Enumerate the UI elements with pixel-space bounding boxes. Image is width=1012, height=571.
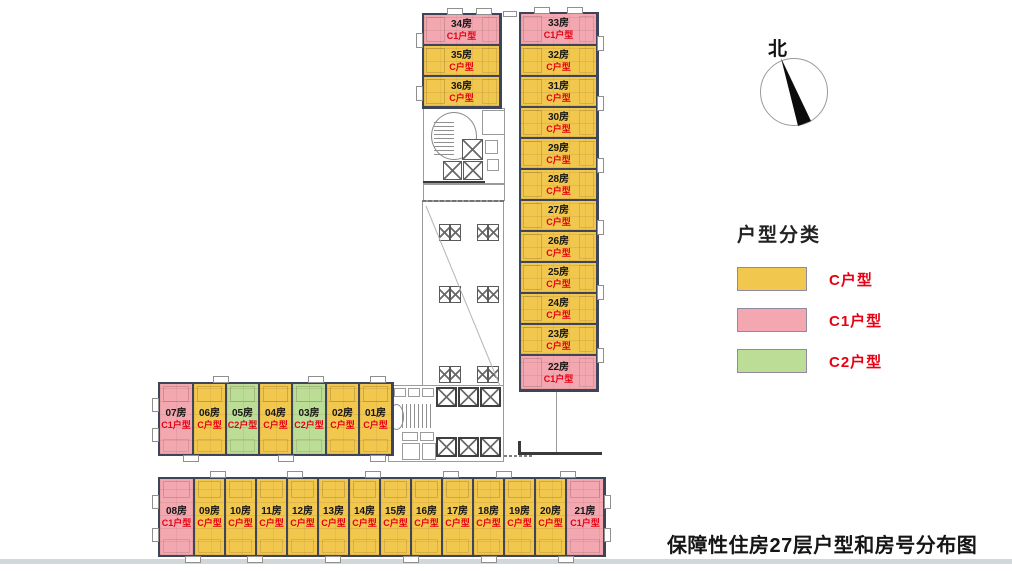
wall-segment	[423, 181, 485, 183]
room-type-label: C户型	[445, 518, 470, 528]
room-type-label: C1户型	[544, 374, 574, 384]
room-26房: 26房C户型	[520, 231, 597, 262]
room-number: 20房	[540, 506, 561, 517]
room-type-label: C户型	[546, 248, 571, 258]
elevator-shaft	[458, 387, 479, 407]
balcony-platform	[416, 86, 423, 101]
room-type-label: C1户型	[570, 518, 600, 528]
room-number: 13房	[323, 506, 344, 517]
room-number: 10房	[230, 506, 251, 517]
room-24房: 24房C户型	[520, 293, 597, 324]
room-14房: 14房C户型	[349, 478, 380, 556]
room-35房: 35房C户型	[423, 45, 500, 76]
balcony-platform	[447, 8, 463, 15]
room-type-label: C户型	[546, 93, 571, 103]
room-06房: 06房C户型	[193, 383, 226, 455]
core-room	[408, 388, 420, 397]
room-type-label: C户型	[228, 518, 253, 528]
elevator-shaft	[439, 224, 450, 241]
legend-swatch-c	[737, 267, 807, 291]
room-07房: 07房C1户型	[159, 383, 193, 455]
elevator-shaft	[439, 366, 450, 383]
balcony-platform	[443, 471, 459, 478]
balcony-platform	[152, 528, 159, 542]
balcony-platform	[152, 398, 159, 412]
room-number: 30房	[548, 112, 569, 123]
room-type-label: C户型	[449, 62, 474, 72]
room-number: 08房	[166, 506, 187, 517]
room-20房: 20房C户型	[535, 478, 566, 556]
room-02房: 02房C户型	[326, 383, 359, 455]
room-type-label: C户型	[546, 186, 571, 196]
room-number: 34房	[451, 19, 472, 30]
room-number: 32房	[548, 50, 569, 61]
room-type-label: C户型	[546, 310, 571, 320]
room-type-label: C户型	[449, 93, 474, 103]
room-type-label: C1户型	[544, 30, 574, 40]
balcony-platform	[481, 556, 497, 563]
room-15房: 15房C户型	[380, 478, 411, 556]
room-number: 23房	[548, 329, 569, 340]
room-type-label: C户型	[290, 518, 315, 528]
balcony-platform	[365, 471, 381, 478]
room-13房: 13房C户型	[318, 478, 349, 556]
room-type-label: C户型	[259, 518, 284, 528]
room-number: 16房	[416, 506, 437, 517]
room-type-label: C户型	[538, 518, 563, 528]
room-type-label: C户型	[197, 420, 222, 430]
elevator-shaft	[488, 224, 499, 241]
room-03房: 03房C2户型	[292, 383, 326, 455]
balcony-platform	[567, 7, 583, 14]
room-number: 06房	[199, 408, 220, 419]
legend-title: 户型分类	[737, 220, 882, 247]
legend-swatch-c1	[737, 308, 807, 332]
core-room	[485, 140, 498, 154]
room-type-label: C户型	[546, 279, 571, 289]
compass-circle	[760, 58, 828, 126]
legend: 户型分类 C户型 C1户型 C2户型	[737, 220, 882, 390]
elevator-shaft	[477, 366, 488, 383]
room-type-label: C1户型	[447, 31, 477, 41]
room-number: 35房	[451, 50, 472, 61]
room-28房: 28房C户型	[520, 169, 597, 200]
balcony-platform	[325, 556, 341, 563]
room-27房: 27房C户型	[520, 200, 597, 231]
room-type-label: C户型	[546, 124, 571, 134]
room-number: 26房	[548, 236, 569, 247]
room-type-label: C户型	[197, 518, 222, 528]
elevator-shaft	[436, 387, 457, 407]
room-31房: 31房C户型	[520, 76, 597, 107]
room-18房: 18房C户型	[473, 478, 504, 556]
elevator-shaft	[436, 437, 457, 457]
balcony-platform	[308, 376, 324, 383]
room-number: 36房	[451, 81, 472, 92]
balcony-platform	[185, 556, 201, 563]
room-number: 24房	[548, 298, 569, 309]
wall-segment	[518, 441, 521, 455]
bottom-divider-bar	[0, 559, 1012, 564]
room-type-label: C1户型	[162, 518, 192, 528]
core-room	[402, 432, 418, 441]
room-number: 04房	[265, 408, 286, 419]
legend-label-c2: C2户型	[829, 351, 882, 372]
core-room	[422, 443, 436, 460]
room-number: 21房	[574, 506, 595, 517]
elevator-shaft	[462, 139, 483, 160]
core-room	[422, 388, 434, 397]
room-type-label: C户型	[383, 518, 408, 528]
room-19房: 19房C户型	[504, 478, 535, 556]
room-number: 15房	[385, 506, 406, 517]
balcony-platform	[597, 158, 604, 173]
balcony-platform	[558, 556, 574, 563]
room-number: 14房	[354, 506, 375, 517]
legend-item-c: C户型	[737, 267, 882, 291]
balcony-platform	[416, 33, 423, 48]
room-04房: 04房C户型	[259, 383, 292, 455]
room-number: 17房	[447, 506, 468, 517]
room-number: 03房	[298, 408, 319, 419]
room-number: 07房	[165, 408, 186, 419]
balcony-platform	[183, 455, 199, 462]
core-room	[423, 184, 505, 201]
room-number: 05房	[232, 408, 253, 419]
room-05房: 05房C2户型	[226, 383, 259, 455]
balcony-platform	[597, 285, 604, 300]
balcony-platform	[287, 471, 303, 478]
room-number: 11房	[261, 506, 282, 517]
stairs-hatch	[402, 404, 434, 428]
room-11房: 11房C户型	[256, 478, 287, 556]
room-25房: 25房C户型	[520, 262, 597, 293]
room-number: 22房	[548, 362, 569, 373]
balcony-platform	[210, 471, 226, 478]
room-33房: 33房C1户型	[520, 13, 597, 45]
room-number: 33房	[548, 18, 569, 29]
room-number: 29房	[548, 143, 569, 154]
elevator-shaft	[477, 224, 488, 241]
room-type-label: C户型	[546, 341, 571, 351]
room-number: 28房	[548, 174, 569, 185]
room-01房: 01房C户型	[359, 383, 392, 455]
core-room	[420, 432, 434, 441]
balcony-platform	[534, 7, 550, 14]
room-32房: 32房C户型	[520, 45, 597, 76]
legend-item-c1: C1户型	[737, 308, 882, 332]
core-room	[482, 110, 505, 135]
room-number: 27房	[548, 205, 569, 216]
room-type-label: C2户型	[294, 420, 324, 430]
room-type-label: C1户型	[161, 420, 191, 430]
elevator-shaft	[463, 161, 483, 180]
elevator-shaft	[450, 224, 461, 241]
balcony-platform	[278, 455, 294, 462]
room-type-label: C户型	[546, 62, 571, 72]
room-type-label: C户型	[546, 155, 571, 165]
room-type-label: C户型	[263, 420, 288, 430]
compass-north-label: 北	[768, 34, 787, 61]
elevator-shaft	[443, 161, 462, 180]
wall-segment	[518, 452, 602, 455]
room-type-label: C户型	[546, 217, 571, 227]
corridor-wall	[556, 390, 557, 453]
balcony-platform	[604, 495, 611, 509]
room-number: 31房	[548, 81, 569, 92]
elevator-shaft	[480, 437, 501, 457]
balcony-platform	[597, 36, 604, 51]
room-type-label: C户型	[507, 518, 532, 528]
elevator-shaft	[450, 286, 461, 303]
legend-item-c2: C2户型	[737, 349, 882, 373]
room-09房: 09房C户型	[194, 478, 225, 556]
balcony-platform	[476, 8, 492, 15]
legend-label-c1: C1户型	[829, 310, 882, 331]
room-type-label: C2户型	[228, 420, 258, 430]
balcony-platform	[370, 455, 386, 462]
room-number: 01房	[365, 408, 386, 419]
elevator-shaft	[477, 286, 488, 303]
elevator-shaft	[480, 387, 501, 407]
legend-swatch-c2	[737, 349, 807, 373]
core-room	[394, 388, 406, 397]
caption-title: 保障性住房27层户型和房号分布图	[667, 529, 977, 558]
room-number: 18房	[478, 506, 499, 517]
room-23房: 23房C户型	[520, 324, 597, 355]
elevator-shaft	[488, 286, 499, 303]
balcony-platform	[247, 556, 263, 563]
room-number: 02房	[332, 408, 353, 419]
balcony-platform	[560, 471, 576, 478]
room-36房: 36房C户型	[423, 76, 500, 107]
elevator-shaft	[488, 366, 499, 383]
room-16房: 16房C户型	[411, 478, 442, 556]
balcony-platform	[496, 471, 512, 478]
stairs-hatch	[434, 122, 454, 158]
room-type-label: C户型	[321, 518, 346, 528]
elevator-shaft	[439, 286, 450, 303]
balcony-platform	[213, 376, 229, 383]
balcony-platform	[370, 376, 386, 383]
room-number: 12房	[292, 506, 313, 517]
balcony-platform	[597, 96, 604, 111]
balcony-platform	[503, 11, 517, 17]
room-21房: 21房C1户型	[566, 478, 604, 556]
room-type-label: C户型	[330, 420, 355, 430]
room-17房: 17房C户型	[442, 478, 473, 556]
balcony-platform	[597, 220, 604, 235]
elevator-shaft	[450, 366, 461, 383]
room-22房: 22房C1户型	[520, 355, 597, 390]
room-34房: 34房C1户型	[423, 14, 500, 45]
balcony-platform	[403, 556, 419, 563]
room-number: 19房	[509, 506, 530, 517]
elevator-shaft	[458, 437, 479, 457]
room-type-label: C户型	[414, 518, 439, 528]
room-30房: 30房C户型	[520, 107, 597, 138]
room-10房: 10房C户型	[225, 478, 256, 556]
room-type-label: C户型	[476, 518, 501, 528]
room-08房: 08房C1户型	[159, 478, 194, 556]
core-room	[402, 443, 420, 460]
core-room	[487, 159, 499, 171]
legend-label-c: C户型	[829, 269, 873, 290]
balcony-platform	[152, 428, 159, 442]
room-type-label: C户型	[363, 420, 388, 430]
room-29房: 29房C户型	[520, 138, 597, 169]
room-number: 09房	[199, 506, 220, 517]
balcony-platform	[597, 348, 604, 363]
room-12房: 12房C户型	[287, 478, 318, 556]
balcony-platform	[604, 528, 611, 542]
balcony-platform	[152, 495, 159, 509]
room-type-label: C户型	[352, 518, 377, 528]
room-number: 25房	[548, 267, 569, 278]
